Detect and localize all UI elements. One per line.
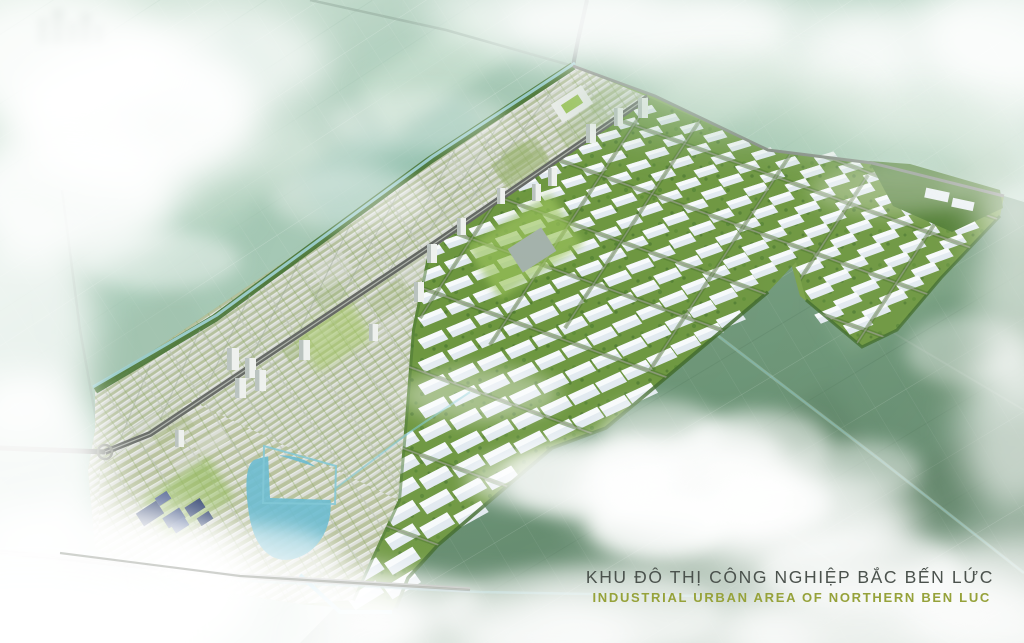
svg-text:INDUSTRIAL URBAN AREA OF NORTH: INDUSTRIAL URBAN AREA OF NORTHERN BEN LU… [592,590,991,605]
svg-text:KHU ĐÔ THỊ CÔNG NGHIỆP BẮC BẾN: KHU ĐÔ THỊ CÔNG NGHIỆP BẮC BẾN LỨC [586,566,994,587]
